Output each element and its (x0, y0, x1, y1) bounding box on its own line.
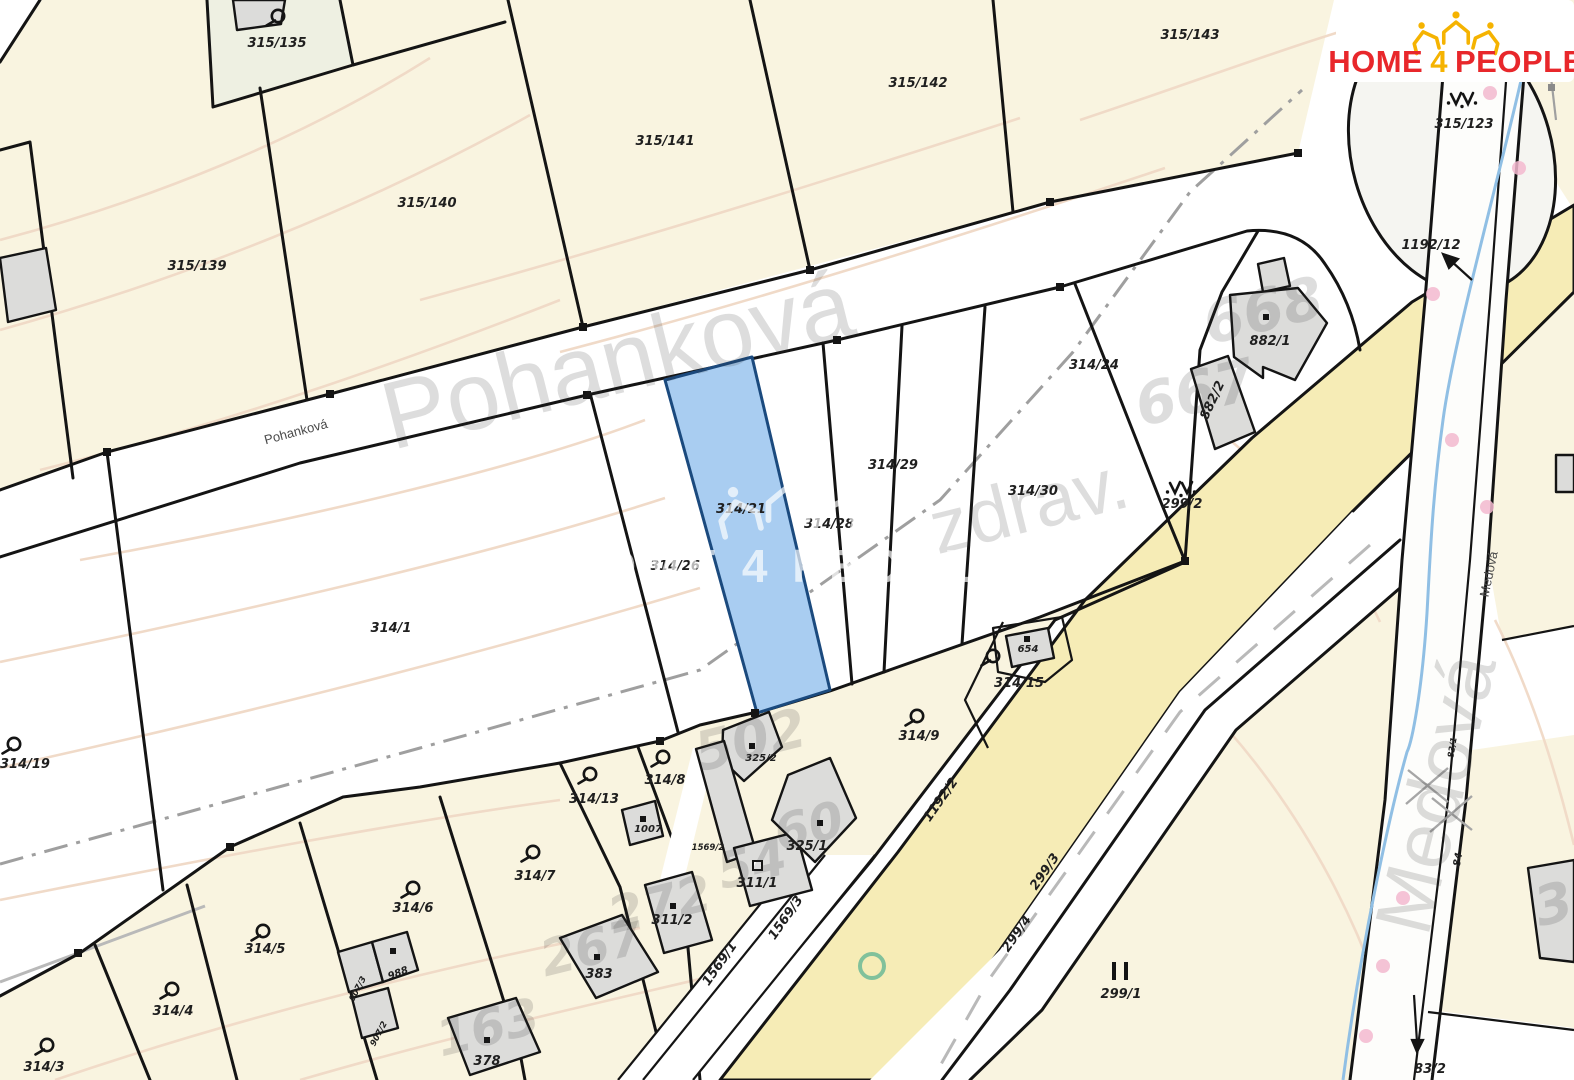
parcel-label-314-8: 314/8 (645, 773, 686, 788)
parcel-label-314-19: 314/19 (0, 757, 50, 772)
parcel-label-315-141: 315/141 (635, 134, 694, 149)
parcel-label-299-1: 299/1 (1101, 987, 1142, 1002)
parcel-label-315-139: 315/139 (167, 259, 226, 274)
parcel-label-314-4: 314/4 (153, 1004, 194, 1019)
parcel-label-314-24: 314/24 (1069, 358, 1119, 373)
parcel-label-83-2: 83/2 (1414, 1062, 1446, 1077)
parcel-label-314-5: 314/5 (245, 942, 286, 957)
parcel-label-314-15: 314/15 (994, 676, 1044, 691)
cadastral-map: 315/135 315/139 315/140 315/141 315/142 … (0, 0, 1574, 1080)
parcel-label-314-28: 314/28 (804, 517, 854, 532)
logo-word-people: PEOPLE (1455, 44, 1574, 79)
logo-word-home: HOME (1328, 44, 1423, 79)
cadastral-map-viewport: 315/135 315/139 315/140 315/141 315/142 … (0, 0, 1574, 1080)
parcel-label-315-135: 315/135 (247, 36, 306, 51)
parcel-label-314-29: 314/29 (868, 458, 918, 473)
parcel-label-314-3: 314/3 (24, 1060, 65, 1075)
parcel-label-314-7: 314/7 (515, 869, 557, 884)
parcel-label-1007: 1007 (634, 824, 662, 835)
parcel-label-315-123: 315/123 (1434, 117, 1493, 132)
brand-watermark-text: HOME 4 PEOPLE (561, 540, 1015, 592)
parcel-label-314-6: 314/6 (393, 901, 434, 916)
parcel-label-299-2: 299/2 (1162, 497, 1203, 512)
parcel-label-315-140: 315/140 (397, 196, 456, 211)
parcel-label-654: 654 (1018, 644, 1039, 655)
parcel-label-315-142: 315/142 (888, 76, 947, 91)
home4people-logo: HOME4PEOPLE (1328, 0, 1574, 82)
parcel-label-314-9: 314/9 (899, 729, 940, 744)
parcel-label-314-13: 314/13 (569, 792, 619, 807)
parcel-label-1192-12: 1192/12 (1401, 238, 1460, 253)
parcel-label-314-1: 314/1 (371, 621, 412, 636)
parcel-label-315-143: 315/143 (1160, 28, 1219, 43)
logo-word-4: 4 (1430, 44, 1448, 79)
